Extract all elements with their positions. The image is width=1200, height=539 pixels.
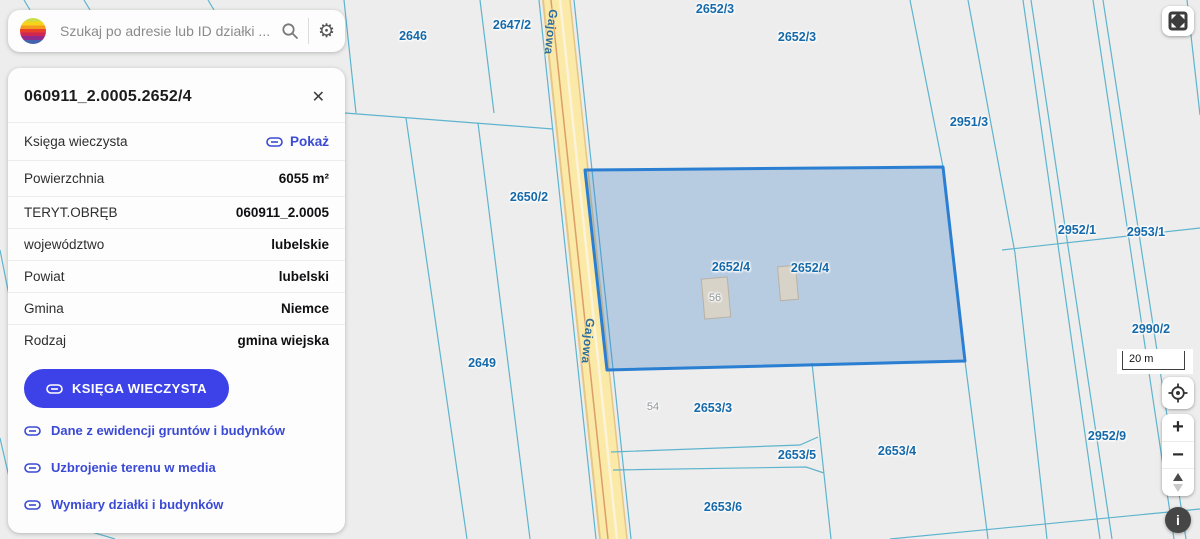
link-icon	[266, 136, 283, 148]
search-input[interactable]	[58, 22, 281, 40]
building-small	[778, 265, 799, 300]
pokaz-link-label: Pokaż	[290, 134, 329, 149]
link-dane-ewidencji[interactable]: Dane z ewidencji gruntów i budynków	[8, 412, 345, 449]
row-label: Księga wieczysta	[24, 134, 128, 149]
building-56	[701, 277, 730, 319]
row-label: Gmina	[24, 301, 64, 316]
row-value: 6055 m²	[279, 171, 329, 186]
row-powiat: Powiat lubelski	[8, 260, 345, 292]
link-icon	[46, 383, 63, 395]
row-label: Powierzchnia	[24, 171, 104, 186]
scale-bar: 20 m	[1117, 349, 1193, 374]
fullscreen-button[interactable]	[1162, 6, 1194, 36]
link-icon	[24, 425, 41, 437]
fullscreen-expand-icon	[1168, 11, 1188, 31]
search-bar: ⚙	[8, 10, 345, 52]
map-app: 2646 2647/2 2652/3 2652/3 2951/3 2650/2 …	[0, 0, 1200, 539]
settings-gear-icon[interactable]: ⚙	[318, 22, 335, 41]
row-rodzaj: Rodzaj gmina wiejska	[8, 324, 345, 356]
link-label: Uzbrojenie terenu w media	[51, 460, 216, 475]
row-value: gmina wiejska	[237, 333, 329, 348]
ksiega-wieczysta-button[interactable]: KSIĘGA WIECZYSTA	[24, 369, 229, 408]
link-wymiary[interactable]: Wymiary działki i budynków	[8, 486, 345, 523]
locate-crosshair-icon	[1167, 382, 1189, 404]
row-label: Rodzaj	[24, 333, 66, 348]
row-powierzchnia: Powierzchnia 6055 m²	[8, 160, 345, 196]
link-icon	[24, 499, 41, 511]
arrow-down-icon	[1173, 484, 1183, 492]
button-label: KSIĘGA WIECZYSTA	[72, 381, 207, 396]
row-gmina: Gmina Niemce	[8, 292, 345, 324]
zoom-controls: + −	[1162, 414, 1194, 496]
close-icon[interactable]: ✕	[308, 85, 329, 109]
link-uzbrojenie[interactable]: Uzbrojenie terenu w media	[8, 449, 345, 486]
row-wojewodztwo: województwo lubelskie	[8, 228, 345, 260]
divider	[308, 18, 309, 44]
selected-parcel[interactable]	[585, 167, 965, 370]
zoom-in-button[interactable]: +	[1162, 414, 1194, 441]
link-icon	[24, 462, 41, 474]
link-label: Dane z ewidencji gruntów i budynków	[51, 423, 285, 438]
info-button[interactable]: i	[1165, 507, 1191, 533]
panel-title: 060911_2.0005.2652/4	[24, 88, 192, 106]
row-value: Niemce	[281, 301, 329, 316]
row-label: województwo	[24, 237, 104, 252]
row-ksiega-wieczysta: Księga wieczysta Pokaż	[8, 122, 345, 160]
row-label: TERYT.OBRĘB	[24, 205, 118, 220]
app-logo-icon[interactable]	[20, 18, 46, 44]
row-value: 060911_2.0005	[236, 205, 329, 220]
tilt-toggle-button[interactable]	[1162, 468, 1194, 496]
scale-label: 20 m	[1123, 351, 1184, 365]
pokaz-link[interactable]: Pokaż	[266, 134, 329, 149]
row-label: Powiat	[24, 269, 65, 284]
link-label: Wymiary działki i budynków	[51, 497, 223, 512]
row-teryt: TERYT.OBRĘB 060911_2.0005	[8, 196, 345, 228]
arrow-up-icon	[1173, 473, 1183, 481]
search-icon[interactable]	[281, 22, 299, 40]
row-value: lubelski	[279, 269, 329, 284]
zoom-out-button[interactable]: −	[1162, 441, 1194, 469]
parcel-info-panel: 060911_2.0005.2652/4 ✕ Księga wieczysta …	[8, 68, 345, 533]
row-value: lubelskie	[271, 237, 329, 252]
locate-button[interactable]	[1162, 377, 1194, 409]
